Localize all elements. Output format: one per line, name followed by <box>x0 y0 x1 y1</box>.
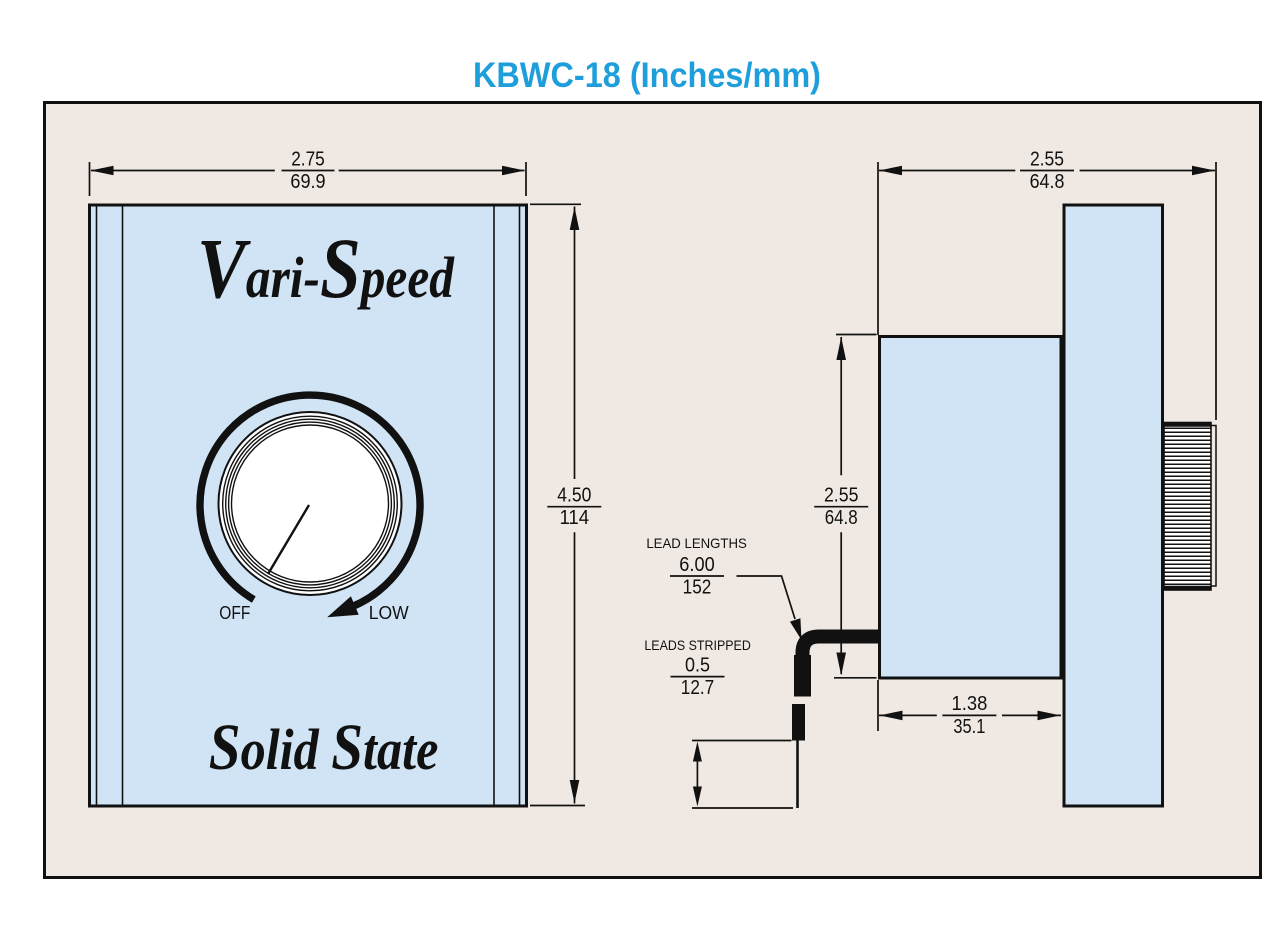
svg-text:2.75: 2.75 <box>291 147 325 170</box>
svg-text:35.1: 35.1 <box>953 715 985 738</box>
svg-text:LEADS STRIPPED: LEADS STRIPPED <box>644 637 751 653</box>
svg-text:64.8: 64.8 <box>1030 170 1065 193</box>
svg-text:12.7: 12.7 <box>681 676 715 699</box>
svg-text:Solid State: Solid State <box>209 711 439 784</box>
svg-text:152: 152 <box>683 576 712 599</box>
svg-text:64.8: 64.8 <box>825 506 858 529</box>
svg-text:114: 114 <box>559 506 589 529</box>
svg-text:0.5: 0.5 <box>685 653 710 676</box>
svg-text:4.50: 4.50 <box>557 484 591 507</box>
svg-text:2.55: 2.55 <box>824 484 859 507</box>
svg-text:2.55: 2.55 <box>1030 147 1064 170</box>
svg-text:KBWC-18 (Inches/mm): KBWC-18 (Inches/mm) <box>473 55 821 95</box>
svg-text:1.38: 1.38 <box>951 692 987 715</box>
svg-text:69.9: 69.9 <box>290 170 325 193</box>
svg-text:LOW: LOW <box>369 603 409 623</box>
svg-text:OFF: OFF <box>219 603 250 623</box>
svg-text:LEAD LENGTHS: LEAD LENGTHS <box>646 535 747 551</box>
svg-text:6.00: 6.00 <box>679 553 714 576</box>
